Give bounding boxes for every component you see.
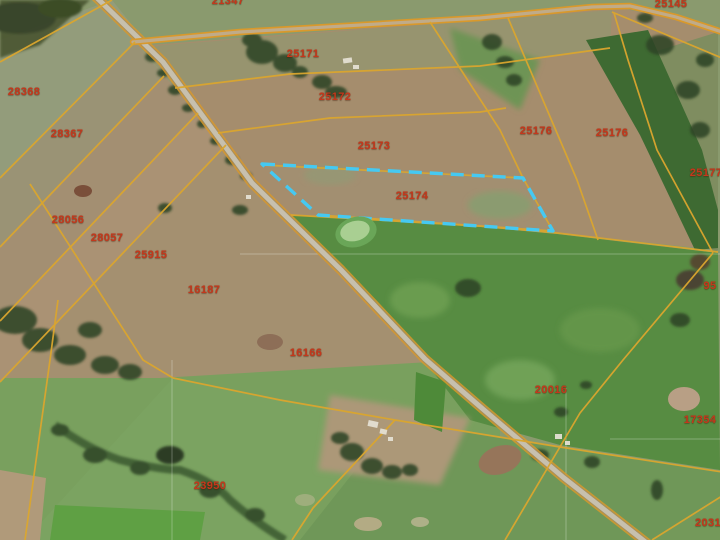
parcel-label-17354[interactable]: 17354 <box>684 414 717 426</box>
parcel-label-23950[interactable]: 23950 <box>194 480 227 492</box>
parcel-label-25176[interactable]: 25176 <box>520 125 553 137</box>
parcel-label-25145[interactable]: 25145 <box>655 0 688 10</box>
parcel-label-25915[interactable]: 25915 <box>135 249 168 261</box>
parcel-label-21347[interactable]: 21347 <box>212 0 245 7</box>
parcel-label-25173[interactable]: 25173 <box>358 140 391 152</box>
parcel-label-25171[interactable]: 25171 <box>287 48 320 60</box>
parcel-label-2031[interactable]: 2031 <box>695 517 720 529</box>
parcel-label-25176[interactable]: 25176 <box>596 127 629 139</box>
parcel-label-28057[interactable]: 28057 <box>91 232 124 244</box>
parcel-label-16166[interactable]: 16166 <box>290 347 323 359</box>
parcel-label-28367[interactable]: 28367 <box>51 128 84 140</box>
parcel-label-28368[interactable]: 28368 <box>8 86 41 98</box>
parcel-label-95[interactable]: 95 <box>703 280 716 292</box>
parcel-label-28056[interactable]: 28056 <box>52 214 85 226</box>
map-canvas[interactable]: 2134725145283682836725171251722517325174… <box>0 0 720 540</box>
parcel-label-16187[interactable]: 16187 <box>188 284 221 296</box>
parcel-label-25172[interactable]: 25172 <box>319 91 352 103</box>
parcel-label-25174[interactable]: 25174 <box>396 190 429 202</box>
parcel-label-25177[interactable]: 25177 <box>690 167 720 179</box>
parcel-label-20016[interactable]: 20016 <box>535 384 568 396</box>
satellite-imagery <box>0 0 720 540</box>
